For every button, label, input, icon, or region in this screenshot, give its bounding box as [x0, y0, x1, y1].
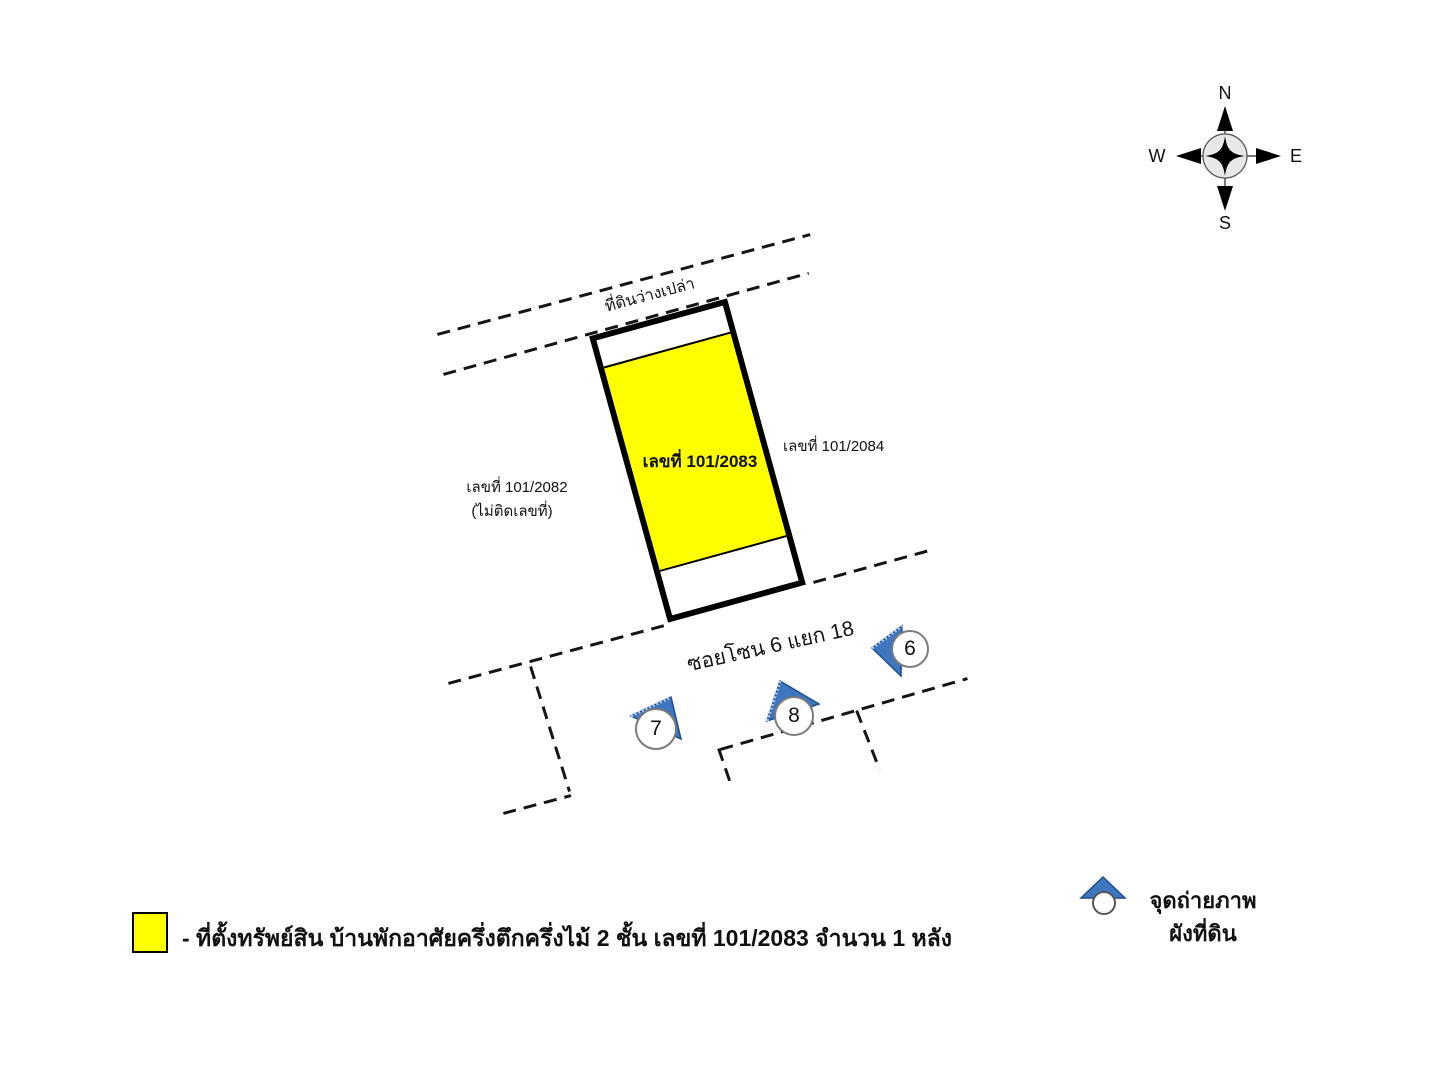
left-parcel-label-line1: เลขที่ 101/2082 [447, 475, 587, 499]
compass-west-arrow [1176, 148, 1201, 164]
camera-marker-7-number: 7 [635, 708, 677, 750]
legend-photo-point-icon [1075, 870, 1131, 920]
legend-property-text: - ที่ตั้งทรัพย์สิน บ้านพักอาศัยครึ่งตึกค… [182, 921, 952, 957]
legend-photo-point-line1: จุดถ่ายภาพ [1128, 884, 1278, 917]
lower-lot-boundary-left-horizontal [503, 794, 571, 815]
compass-north-arrow [1217, 106, 1233, 131]
lower-lot-boundary-mid-vertical [855, 710, 881, 770]
road-upper-edge-right [813, 548, 934, 584]
lower-lot-boundary-left-vertical [529, 666, 571, 792]
camera-marker-6-number: 6 [891, 630, 929, 668]
legend-photo-point-text: จุดถ่ายภาพ ผังที่ดิน [1128, 884, 1278, 950]
road-label: ซอยโซน 6 แยก 18 [667, 608, 874, 685]
camera-marker-8-number: 8 [774, 696, 814, 736]
compass-north-label: N [1219, 83, 1232, 103]
right-parcel-label: เลขที่ 101/2084 [783, 434, 884, 458]
compass-south-label: S [1219, 213, 1231, 233]
camera-marker-8: 8 [762, 676, 824, 740]
compass-west-label: W [1149, 146, 1166, 166]
subject-parcel-label: เลขที่ 101/2083 [620, 448, 780, 475]
compass-east-arrow [1256, 148, 1281, 164]
compass-east-label: E [1290, 146, 1302, 166]
compass-rose-icon: N S W E [1140, 78, 1310, 238]
road-upper-edge-left [448, 623, 669, 685]
lower-lot-boundary-notch-vertical [717, 748, 733, 787]
left-parcel-label-line2: (ไม่ติดเลขที่) [442, 499, 582, 523]
legend-subject-parcel-swatch [132, 912, 168, 953]
legend-photo-point-line2: ผังที่ดิน [1128, 917, 1278, 950]
camera-marker-6: 6 [866, 620, 932, 682]
photo-point-circle [1092, 891, 1116, 915]
compass-south-arrow [1217, 186, 1233, 211]
land-plot-map: ที่ดินว่างเปล่า เลขที่ 101/2083 เลขที่ 1… [0, 0, 1440, 1080]
road-lower-edge [720, 677, 968, 751]
camera-marker-7: 7 [625, 690, 687, 755]
boundary-dashed-line-top-1 [437, 233, 811, 336]
